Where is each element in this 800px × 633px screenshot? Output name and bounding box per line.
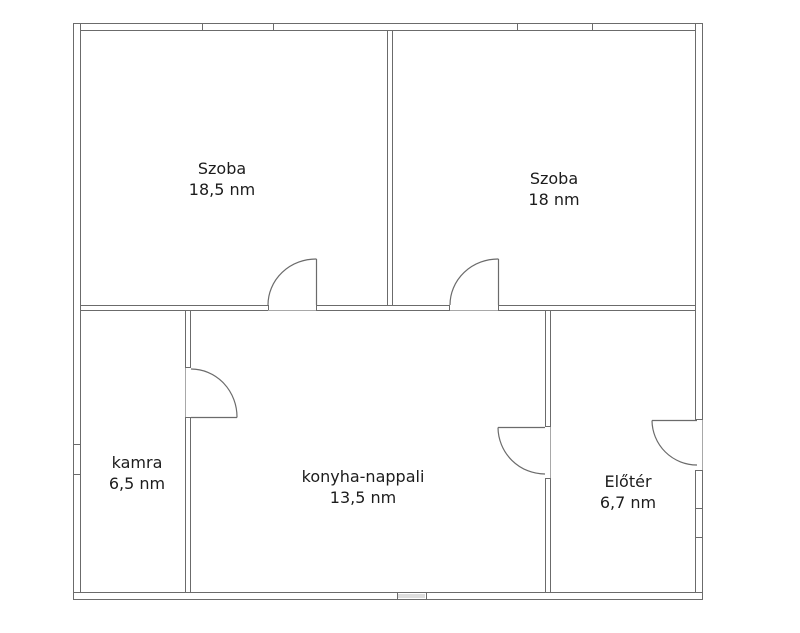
outer-wall-bottom [74,593,703,600]
interior-wall-eloter-upper [546,311,551,427]
door-kamra [191,369,237,418]
doors [191,259,697,474]
room-name: Szoba [528,168,579,189]
interior-wall-horizontal-mid [317,306,450,311]
outer-wall-right-upper [696,24,703,420]
outer-wall-top [74,24,703,31]
door-entrance [652,421,697,466]
door-thresholds [186,311,703,479]
interior-wall-horizontal-left [81,306,269,311]
door-arc-szoba-1 [268,259,317,305]
room-name: Szoba [189,158,255,179]
outer-wall-left [74,24,81,600]
room-area: 6,7 nm [600,492,656,513]
door-arc-entrance [652,421,697,466]
interior-wall-eloter-lower [546,479,551,593]
room-area: 6,5 nm [109,473,165,494]
door-arc-konyha-eloter [498,428,545,475]
interior-wall-kamra-lower [186,418,191,593]
interior-wall-kamra-upper [186,311,191,368]
room-label-konyha-nappali: konyha-nappali 13,5 nm [302,466,425,508]
walls [74,24,703,600]
floorplan-drawing [0,0,800,633]
door-arc-szoba-2 [450,259,499,305]
room-name: kamra [109,452,165,473]
door-arc-kamra [191,369,237,418]
room-label-szoba-1: Szoba 18,5 nm [189,158,255,200]
room-label-szoba-2: Szoba 18 nm [528,168,579,210]
interior-wall-upper-rooms-divider [388,31,393,306]
door-konyha-eloter [498,428,545,475]
room-name: konyha-nappali [302,466,425,487]
floorplan-canvas: Szoba 18,5 nm Szoba 18 nm kamra 6,5 nm k… [0,0,800,633]
door-szoba-1 [268,259,317,305]
room-area: 18,5 nm [189,179,255,200]
room-label-eloter: Előtér 6,7 nm [600,471,656,513]
room-name: Előtér [600,471,656,492]
interior-wall-horizontal-right [499,306,696,311]
room-area: 13,5 nm [302,487,425,508]
door-szoba-2 [450,259,499,305]
room-area: 18 nm [528,189,579,210]
room-label-kamra: kamra 6,5 nm [109,452,165,494]
window-fill [398,594,425,598]
outer-wall-right-lower [696,471,703,600]
